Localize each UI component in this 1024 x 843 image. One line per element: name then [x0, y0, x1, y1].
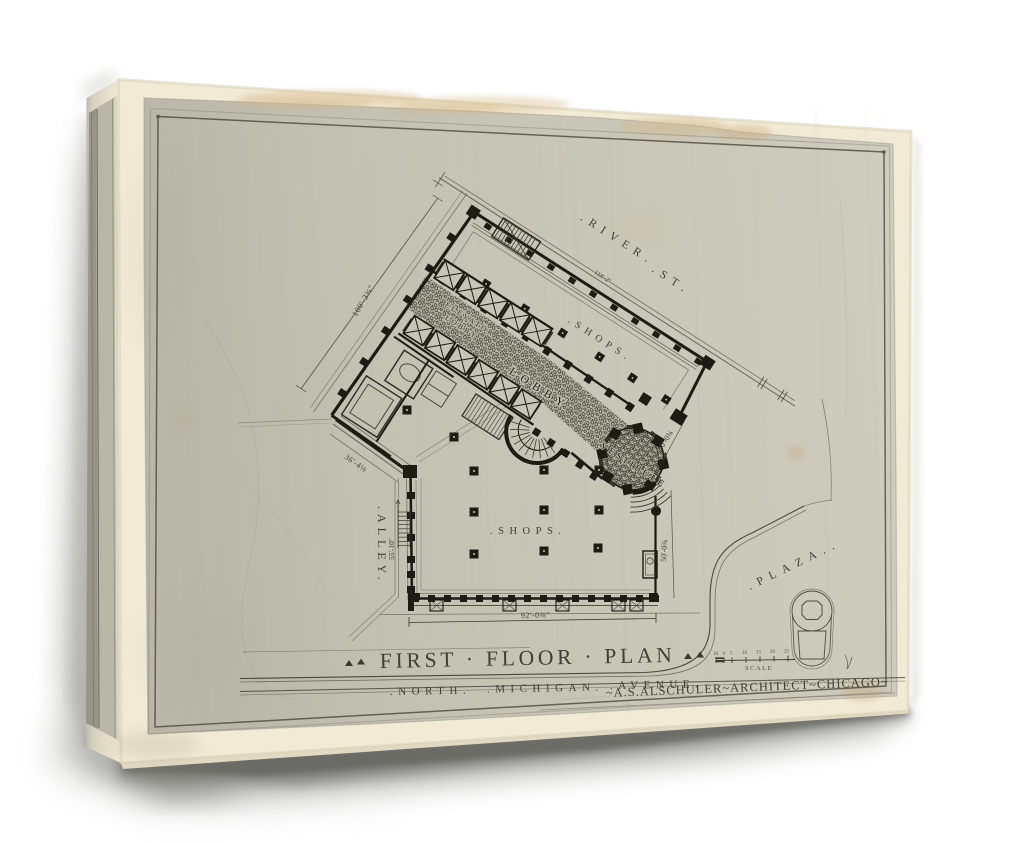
- svg-text:.MICHIGAN.: .MICHIGAN.: [487, 681, 604, 695]
- svg-text:.SHOPS.: .SHOPS.: [490, 526, 566, 537]
- svg-text:10: 10: [742, 651, 748, 656]
- svg-text:92'-0⅜": 92'-0⅜": [521, 610, 550, 620]
- svg-text:15: 15: [756, 651, 762, 656]
- svg-text:.ALLEY.: .ALLEY.: [375, 506, 389, 585]
- svg-text:25: 25: [784, 650, 790, 655]
- svg-text:10: 10: [713, 652, 719, 657]
- svg-text:.NORTH.: .NORTH.: [390, 685, 471, 698]
- svg-text:SCALE: SCALE: [745, 665, 773, 672]
- svg-text:50'-0¾: 50'-0¾: [659, 540, 669, 563]
- svg-text:20: 20: [770, 650, 776, 655]
